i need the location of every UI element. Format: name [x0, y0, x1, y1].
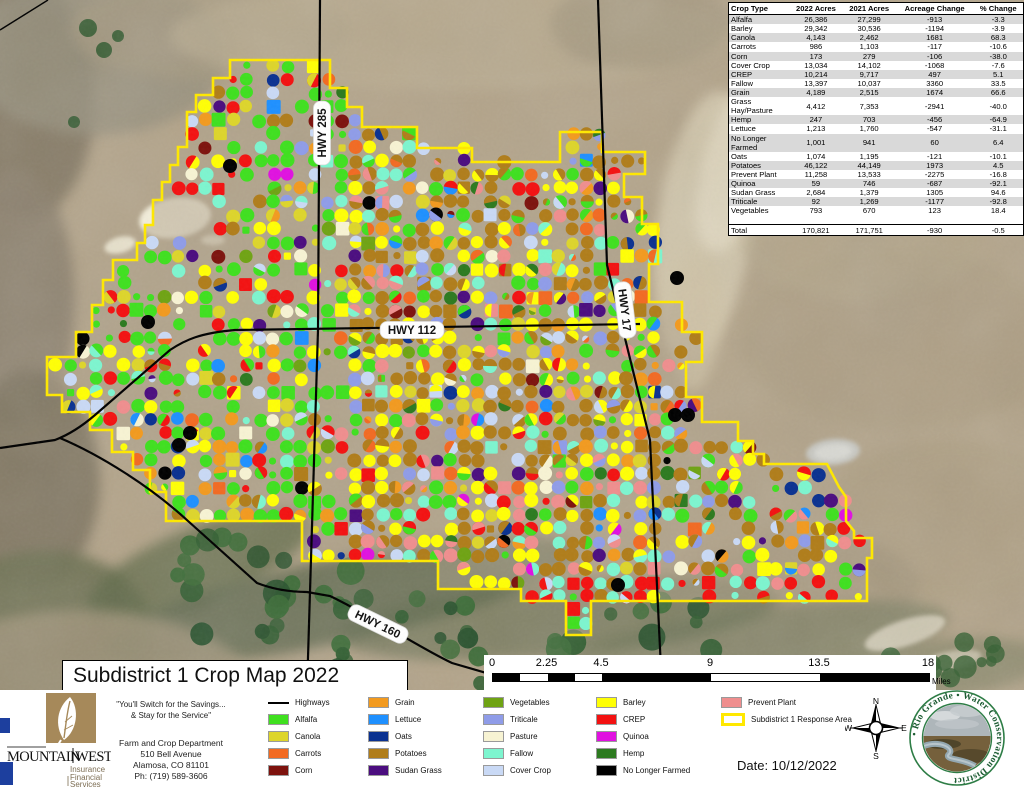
- compass-west-label: W: [845, 723, 852, 733]
- legend-label: Hemp: [623, 749, 644, 758]
- color-swatch: [368, 697, 389, 708]
- table-header: 2022 Acres: [789, 3, 842, 15]
- table-row: CREP10,2149,7174975.1: [729, 70, 1023, 79]
- legend-label: Triticale: [510, 715, 538, 724]
- table-row: Canola4,1432,462168168.3: [729, 33, 1023, 42]
- scale-tick-label: 9: [707, 657, 713, 669]
- legend-label: Fallow: [510, 749, 533, 758]
- legend-item: Highways: [268, 694, 368, 711]
- response-area-swatch: [721, 713, 745, 726]
- legend-item: Barley: [596, 694, 721, 711]
- scale-tick-label: 4.5: [593, 657, 608, 669]
- legend-label: Prevent Plant: [748, 698, 796, 707]
- legend-label: Canola: [295, 732, 320, 741]
- mw-address-line2: 510 Bell Avenue: [108, 749, 234, 760]
- legend-item: Grain: [368, 694, 483, 711]
- legend-label: Subdistrict 1 Response Area: [751, 715, 852, 724]
- color-swatch: [483, 748, 504, 759]
- table-row: Prevent Plant11,25813,533-2275-16.8: [729, 170, 1023, 179]
- legend-label: Highways: [295, 698, 330, 707]
- legend-label: Vegetables: [510, 698, 550, 707]
- map-frame: HWY 285HWY 112HWY 17HWY 160 Crop Type202…: [0, 0, 1024, 690]
- legend-label: Carrots: [295, 749, 321, 758]
- legend-label: Potatoes: [395, 749, 427, 758]
- legend-item: Hemp: [596, 745, 721, 762]
- crop-acreage-table: Crop Type2022 Acres2021 AcresAcreage Cha…: [728, 2, 1024, 236]
- legend-item: CREP: [596, 711, 721, 728]
- legend-label: Corn: [295, 766, 312, 775]
- table-total-row: Total170,821171,751-930-0.5: [729, 224, 1023, 235]
- legend-label: Barley: [623, 698, 646, 707]
- color-swatch: [368, 748, 389, 759]
- table-row: Hemp247703-456-64.9: [729, 115, 1023, 124]
- legend-item: Pasture: [483, 728, 596, 745]
- color-swatch: [483, 765, 504, 776]
- color-swatch: [721, 697, 742, 708]
- table-row: Potatoes46,12244,14919734.5: [729, 161, 1023, 170]
- scale-tick-label: 13.5: [808, 657, 829, 669]
- color-swatch: [596, 748, 617, 759]
- legend-label: CREP: [623, 715, 645, 724]
- legend-label: Grain: [395, 698, 415, 707]
- color-swatch: [596, 697, 617, 708]
- legend-label: Alfalfa: [295, 715, 317, 724]
- compass-rose: N E S W: [845, 696, 907, 765]
- color-swatch: [596, 731, 617, 742]
- color-swatch: [596, 765, 617, 776]
- mw-address-line3: Alamosa, CO 81101: [108, 760, 234, 771]
- mw-address-line1: Farm and Crop Department: [108, 738, 234, 749]
- table-row: Grain4,1892,515167466.6: [729, 88, 1023, 97]
- table-row: Cover Crop13,03414,102-1068-7.6: [729, 61, 1023, 70]
- legend-label: Oats: [395, 732, 412, 741]
- table-header: Acreage Change: [896, 3, 974, 15]
- highway-line-swatch: [268, 702, 289, 704]
- color-swatch: [368, 731, 389, 742]
- color-swatch: [483, 697, 504, 708]
- legend-item: Canola: [268, 728, 368, 745]
- color-swatch: [268, 731, 289, 742]
- table-row: Oats1,0741,195-121-10.1: [729, 152, 1023, 161]
- color-swatch: [268, 714, 289, 725]
- legend-label: Quinoa: [623, 732, 649, 741]
- legend-label: Pasture: [510, 732, 538, 741]
- legend-label: Lettuce: [395, 715, 421, 724]
- color-swatch: [368, 765, 389, 776]
- legend-item: Cover Crop: [483, 762, 596, 779]
- compass-south-label: S: [873, 751, 879, 760]
- legend-item: Vegetables: [483, 694, 596, 711]
- mountain-west-logo: MOUNTAIN WEST Insurance Financial Servic…: [6, 692, 111, 785]
- mw-address-line4: Ph: (719) 589-3606: [108, 771, 234, 782]
- legend-item: Triticale: [483, 711, 596, 728]
- page-title: Subdistrict 1 Crop Map 2022: [63, 664, 339, 688]
- mw-quote-line1: "You'll Switch for the Savings...: [108, 700, 234, 711]
- table-row: Carrots9861,103-117-10.6: [729, 42, 1023, 51]
- table-row: Lettuce1,2131,760-547-31.1: [729, 124, 1023, 133]
- legend-label: Sudan Grass: [395, 766, 442, 775]
- compass-north-label: N: [873, 696, 879, 706]
- mw-text-block: "You'll Switch for the Savings... & Stay…: [108, 700, 234, 782]
- mw-quote-line2: & Stay for the Service": [108, 711, 234, 722]
- color-swatch: [268, 765, 289, 776]
- color-swatch: [483, 714, 504, 725]
- mw-wordmark-left: MOUNTAIN: [7, 749, 81, 765]
- legend-label: No Longer Farmed: [623, 766, 690, 775]
- color-swatch: [483, 731, 504, 742]
- legend-item: Sudan Grass: [368, 762, 483, 779]
- legend-item: Oats: [368, 728, 483, 745]
- legend-item: Alfalfa: [268, 711, 368, 728]
- mw-sub-services: Services: [70, 780, 101, 787]
- table-row: Sudan Grass2,6841,379130594.6: [729, 188, 1023, 197]
- legend-item: Potatoes: [368, 745, 483, 762]
- table-row: Triticale921,269-1177-92.8: [729, 197, 1023, 206]
- table-row: Alfalfa26,38627,299-913-3.3: [729, 15, 1023, 25]
- scale-unit-label: Miles: [932, 677, 951, 686]
- legend-item: Quinoa: [596, 728, 721, 745]
- rio-grande-logo: • Rio Grande • Water Conservation Distri…: [903, 686, 1011, 795]
- table-row: No Longer Farmed1,001941606.4: [729, 134, 1023, 152]
- color-swatch: [368, 714, 389, 725]
- mw-wordmark-right: WEST: [75, 749, 111, 765]
- scale-tick-label: 18: [922, 657, 934, 669]
- legend-item: Lettuce: [368, 711, 483, 728]
- table-row: Barley29,34230,536-1194-3.9: [729, 24, 1023, 33]
- scale-tick-label: 2.25: [536, 657, 557, 669]
- legend-item: Corn: [268, 762, 368, 779]
- table-row: Vegetables79367012318.4: [729, 206, 1023, 215]
- table-row: Quinoa59746-687-92.1: [729, 179, 1023, 188]
- legend-item: Fallow: [483, 745, 596, 762]
- color-swatch: [596, 714, 617, 725]
- legend-label: Cover Crop: [510, 766, 551, 775]
- table-row: Fallow13,39710,037336033.5: [729, 79, 1023, 88]
- map-title-box: Subdistrict 1 Crop Map 2022: [62, 660, 408, 690]
- bottom-bar: MOUNTAIN WEST Insurance Financial Servic…: [0, 690, 1024, 785]
- legend-item: Carrots: [268, 745, 368, 762]
- table-header: Crop Type: [729, 3, 789, 15]
- table-row: Grass Hay/Pasture4,4127,353-2941-40.0: [729, 97, 1023, 115]
- color-swatch: [268, 748, 289, 759]
- table-header: 2021 Acres: [843, 3, 896, 15]
- table-header: % Change: [973, 3, 1023, 15]
- date-label: Date: 10/12/2022: [737, 758, 837, 773]
- table-row: Corn173279-106-38.0: [729, 52, 1023, 61]
- legend-item: No Longer Farmed: [596, 762, 721, 779]
- scale-tick-label: 0: [489, 657, 495, 669]
- scale-bar: 02.254.5913.518Miles: [484, 655, 936, 691]
